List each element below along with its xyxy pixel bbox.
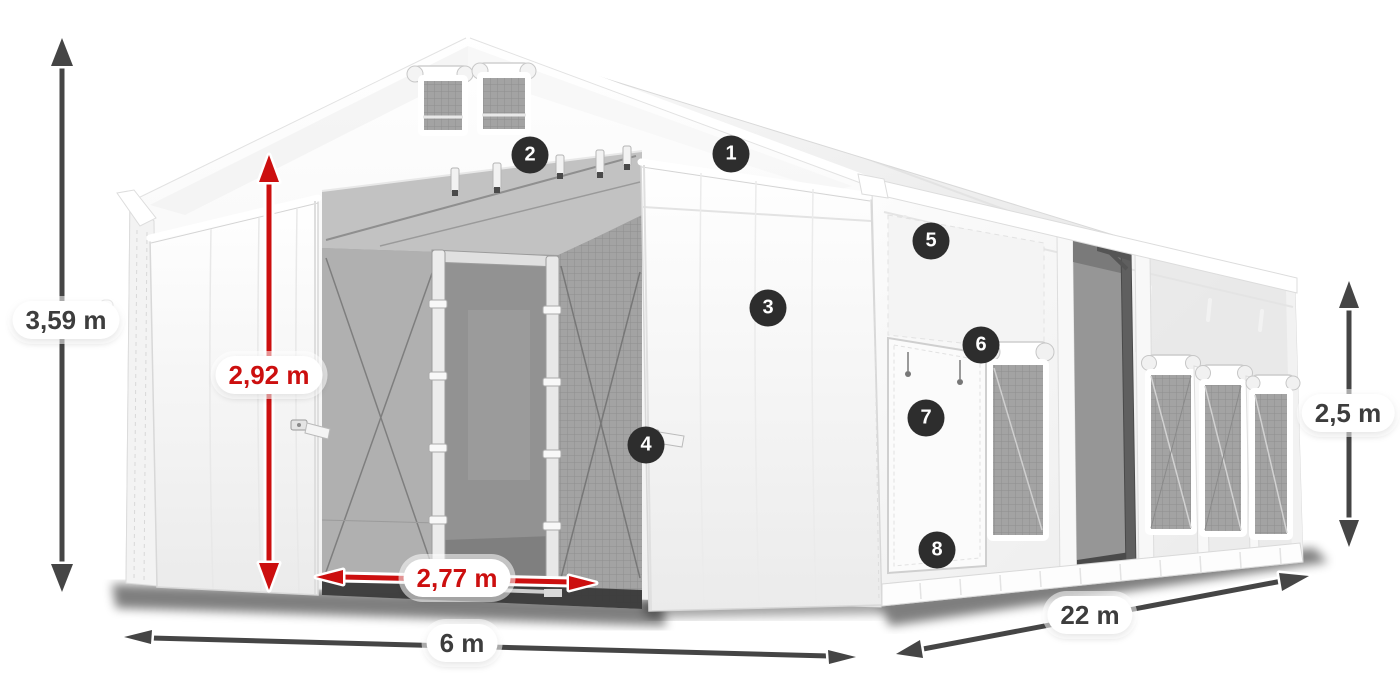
side-window-2 (1142, 355, 1201, 532)
dimension-total-height-label: 3,59 m (13, 301, 120, 339)
callout-badge-2: 2 (512, 137, 549, 174)
callout-badge-8: 8 (919, 532, 956, 569)
callout-badge-3: 3 (750, 290, 787, 327)
callout-badge-4: 4 (628, 427, 665, 464)
vent-window-left (421, 78, 465, 133)
side-window-1 (982, 342, 1054, 538)
callout-badge-5: 5 (913, 223, 950, 260)
tent-interior (322, 151, 642, 609)
side-window-3 (1196, 365, 1253, 534)
dimension-entrance-width-label: 2,77 m (404, 559, 511, 597)
left-door-wing (150, 198, 330, 595)
callout-badge-6: 6 (963, 327, 1000, 364)
dimension-length-label: 22 m (1047, 596, 1132, 634)
vent-window-right (480, 75, 528, 132)
dimension-entrance-height-label: 2,92 m (216, 356, 323, 394)
tent-dimension-diagram: 3,59 m 2,92 m 2,77 m 6 m 22 m 2,5 m 1 2 … (0, 0, 1400, 700)
side-entrance-opening (1057, 234, 1138, 584)
dimension-wall-height-label: 2,5 m (1302, 394, 1395, 432)
front-left-wall (100, 190, 158, 586)
side-window-4 (1246, 375, 1300, 537)
tent-illustration (0, 0, 1400, 700)
right-door-wing (641, 162, 882, 611)
dimension-width-label: 6 m (427, 624, 498, 662)
callout-badge-1: 1 (713, 136, 750, 173)
callout-badge-7: 7 (908, 400, 945, 437)
